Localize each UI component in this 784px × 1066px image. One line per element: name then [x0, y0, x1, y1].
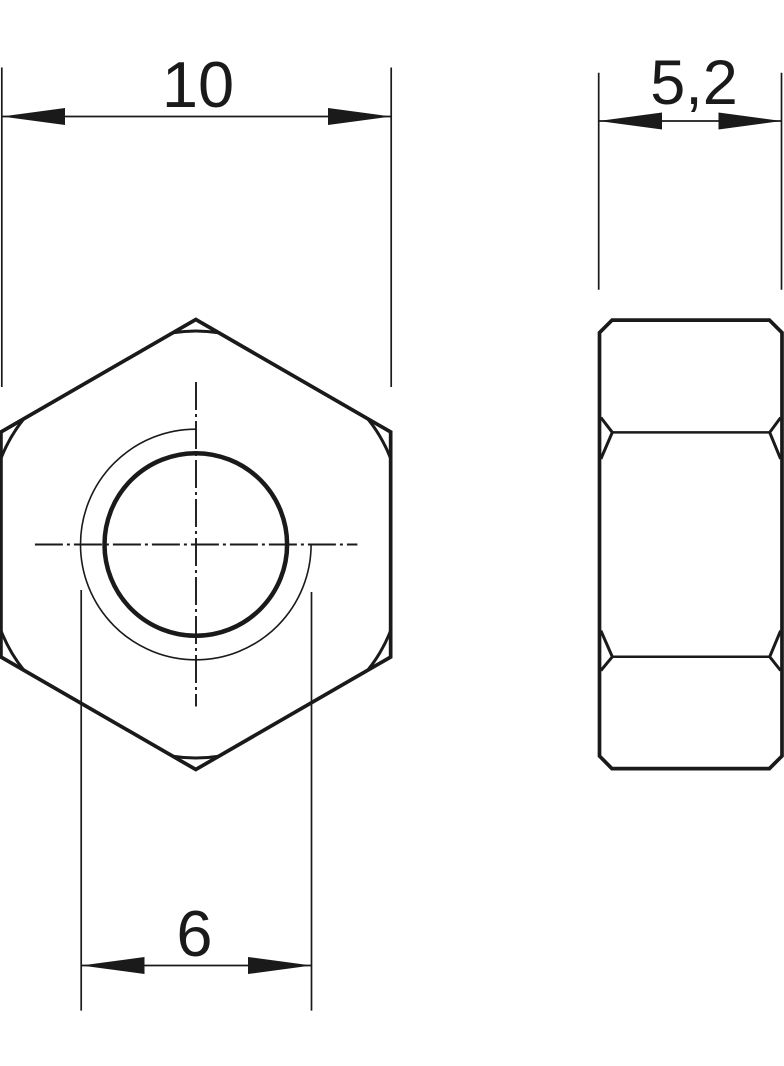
svg-text:10: 10: [162, 48, 234, 121]
svg-text:6: 6: [176, 897, 212, 970]
svg-text:5,2: 5,2: [650, 48, 738, 118]
